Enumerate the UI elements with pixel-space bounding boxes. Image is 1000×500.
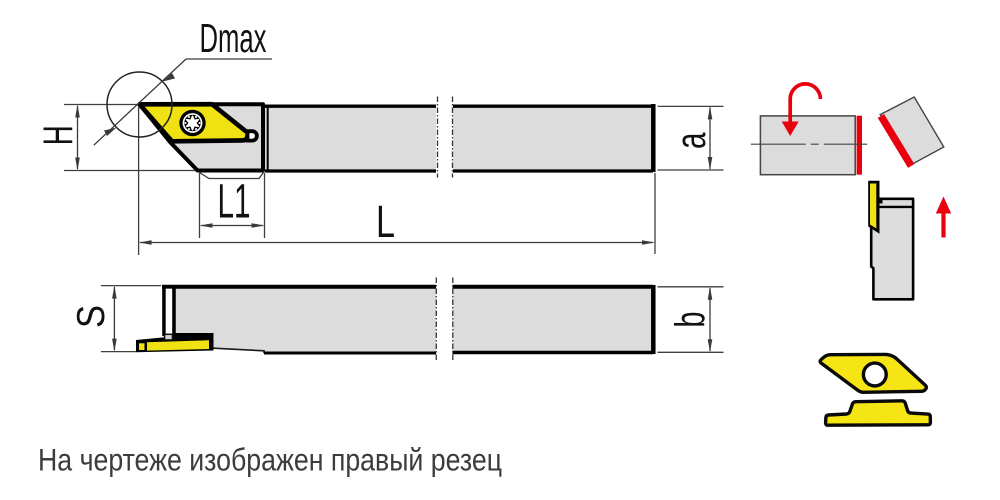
svg-text:Dmax: Dmax [200, 15, 267, 61]
svg-text:L: L [376, 196, 395, 247]
svg-text:L1: L1 [218, 175, 251, 229]
svg-text:S: S [70, 305, 113, 328]
svg-text:a: a [667, 132, 714, 149]
svg-text:b: b [667, 312, 714, 328]
svg-text:H: H [35, 125, 82, 145]
svg-text:На чертеже изображен правый ре: На чертеже изображен правый резец [38, 442, 502, 478]
